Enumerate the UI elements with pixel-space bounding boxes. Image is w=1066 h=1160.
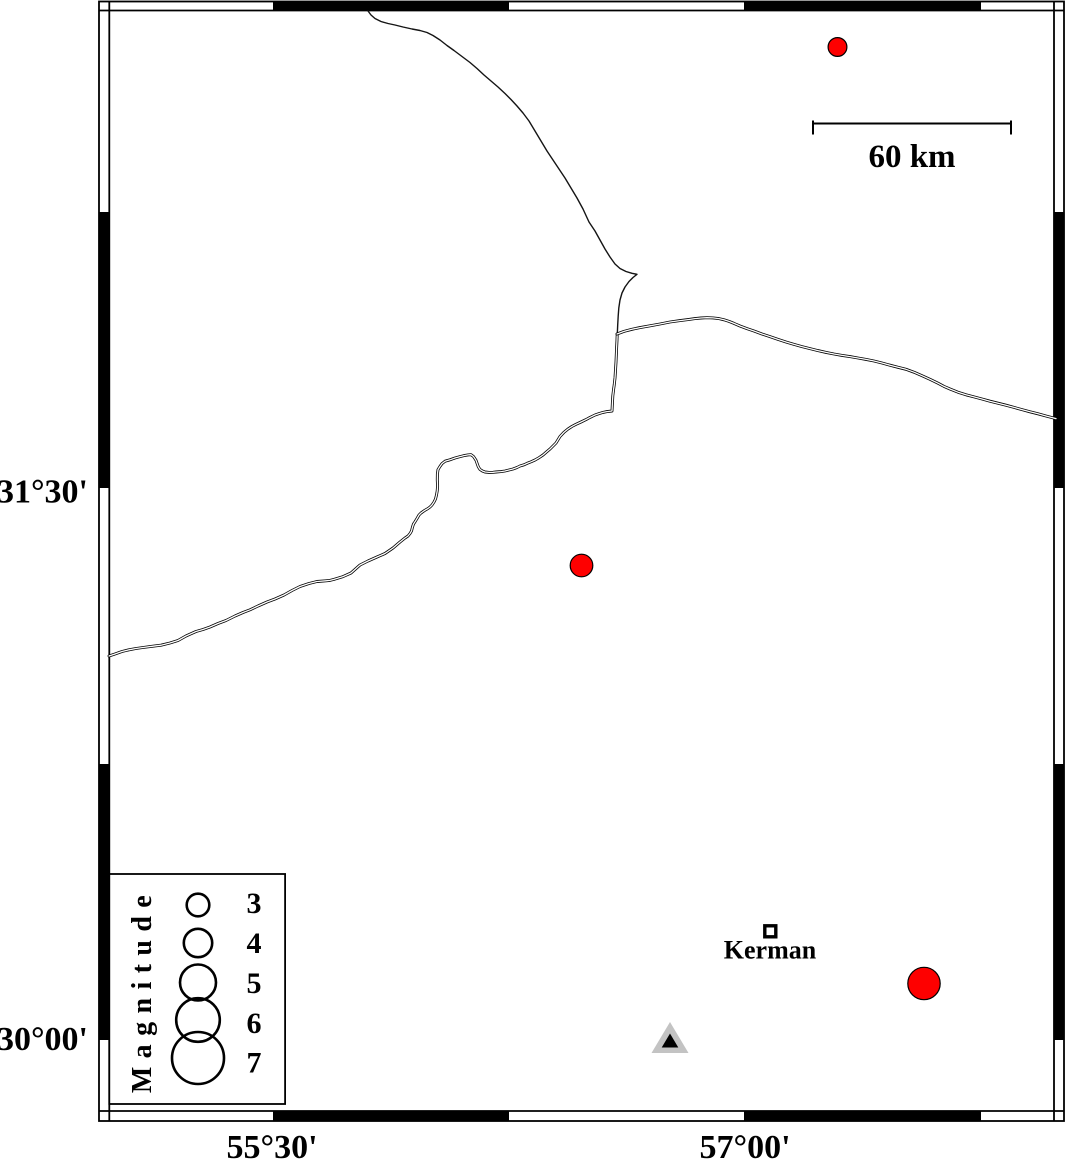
svg-text:Magnitude: Magnitude [127,887,158,1093]
svg-text:7: 7 [247,1047,262,1080]
svg-text:57°00': 57°00' [699,1129,790,1160]
svg-text:Kerman: Kerman [724,936,817,965]
svg-text:60 km: 60 km [868,139,955,175]
svg-text:6: 6 [247,1007,262,1040]
svg-text:5: 5 [247,967,262,1000]
svg-text:3: 3 [247,887,262,920]
svg-text:4: 4 [247,927,262,960]
svg-text:30°00': 30°00' [0,1021,88,1058]
svg-text:31°30': 31°30' [0,474,88,511]
svg-text:55°30': 55°30' [226,1129,317,1160]
